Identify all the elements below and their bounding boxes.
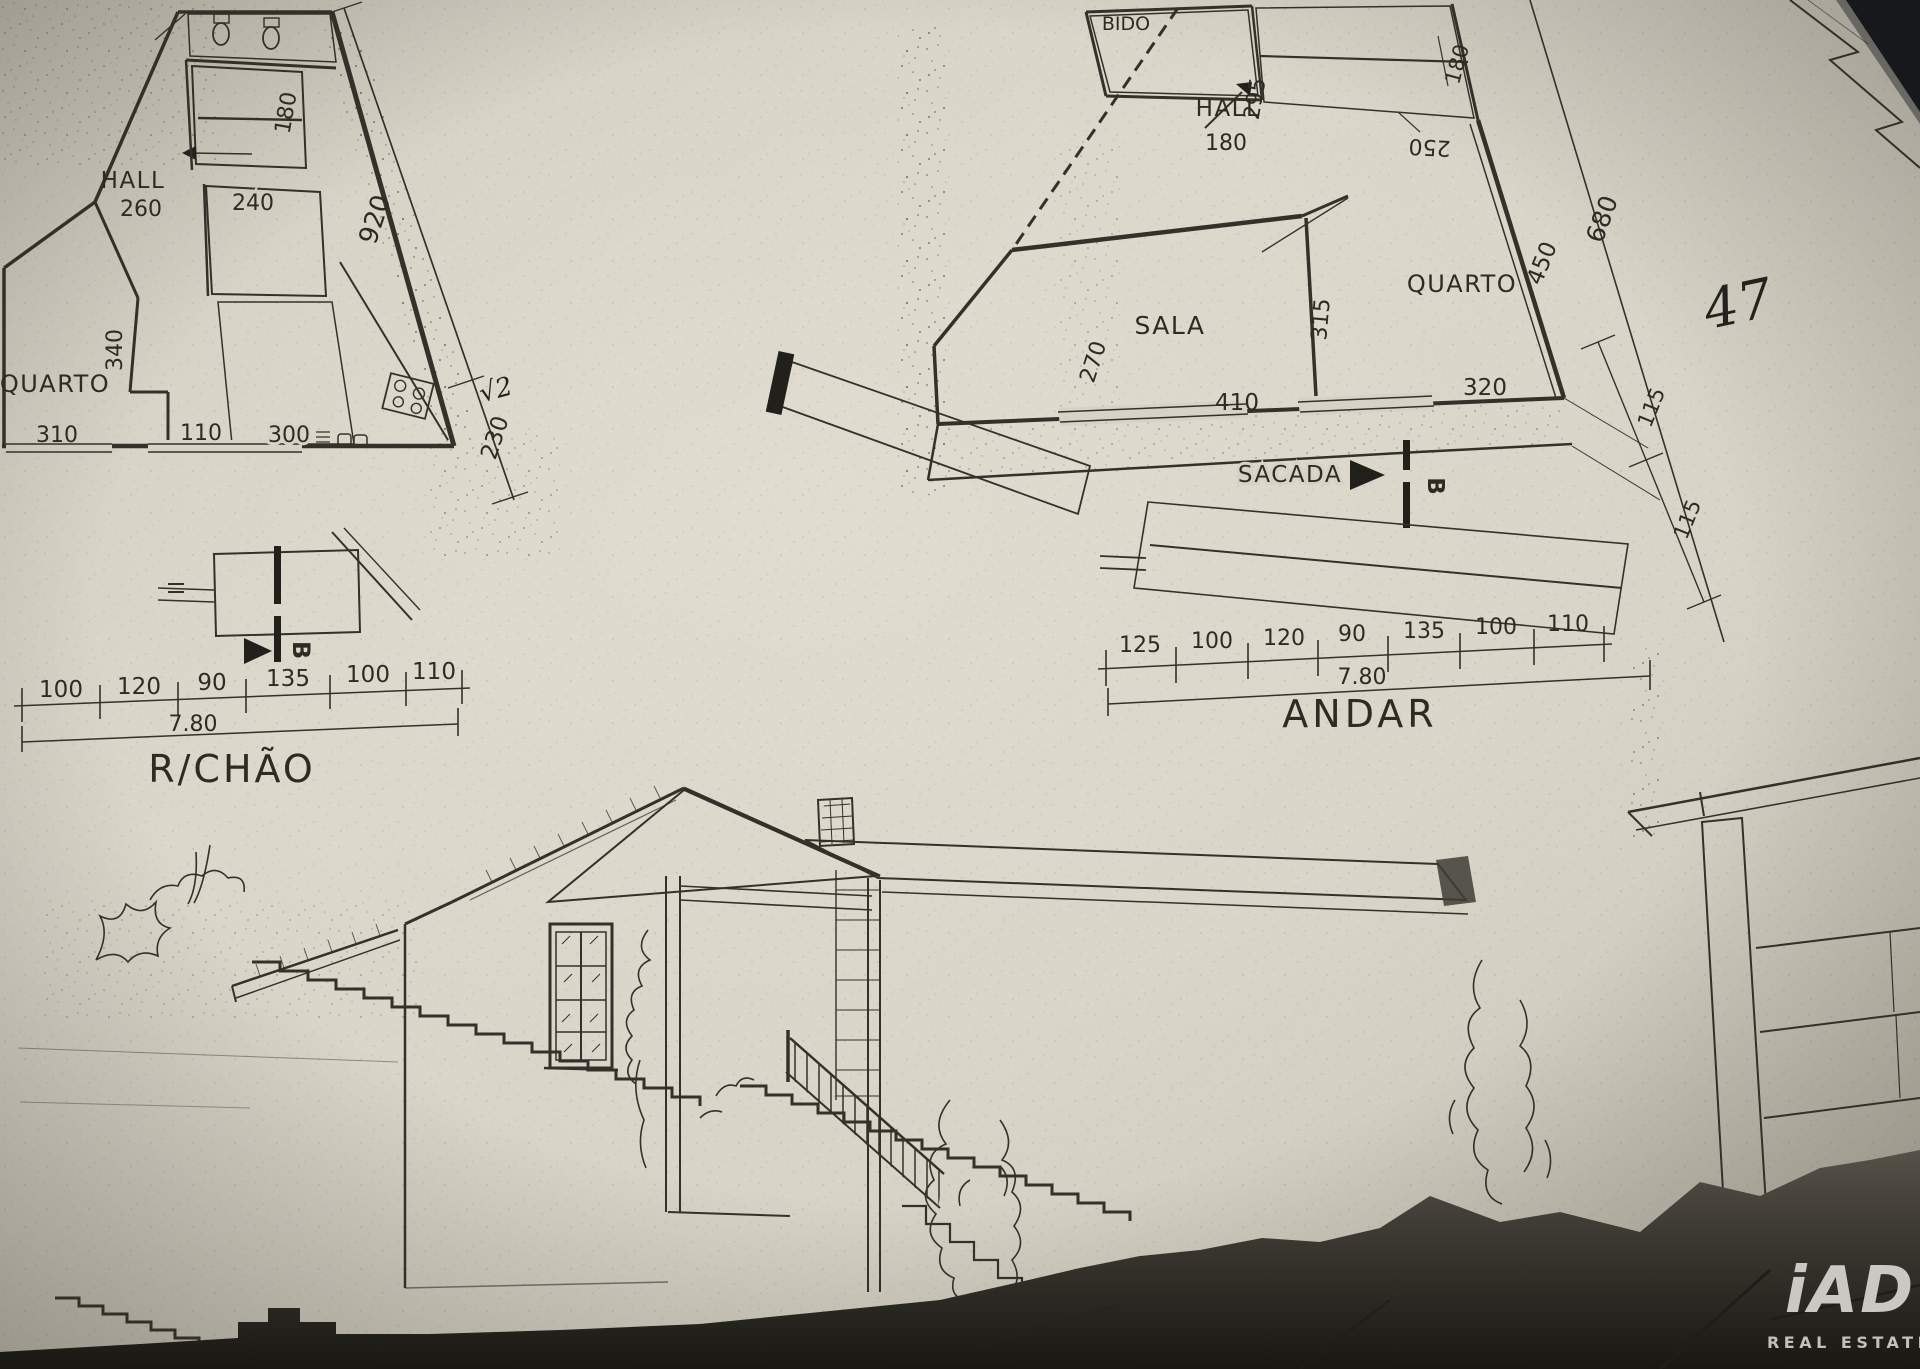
blueprint-photo: HALL 260 180 240 340 QUARTO 310 110 300 …	[0, 0, 1920, 1369]
iad-logo-tagline: REAL ESTATE	[1767, 1333, 1920, 1352]
photo-vignette	[0, 0, 1920, 1369]
iad-logo-text: iAD	[1785, 1254, 1916, 1328]
floorplan-scan: HALL 260 180 240 340 QUARTO 310 110 300 …	[0, 0, 1920, 1369]
watermark-logo: iAD REAL ESTATE	[1767, 1254, 1920, 1352]
